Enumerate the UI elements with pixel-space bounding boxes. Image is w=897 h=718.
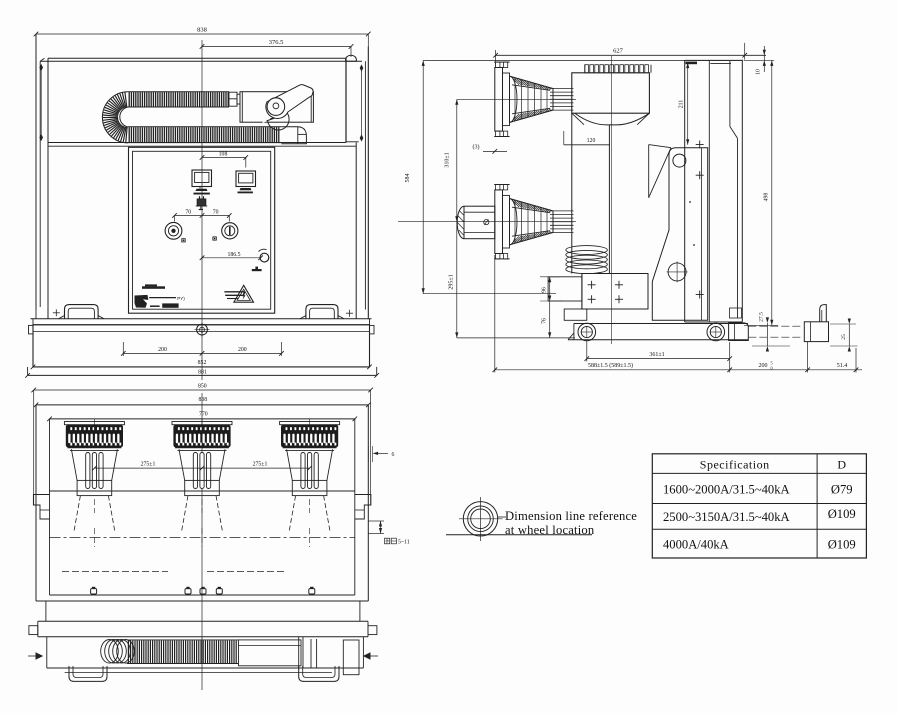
svg-text:108: 108: [219, 152, 228, 158]
svg-text:200: 200: [158, 347, 167, 353]
svg-text:10: 10: [756, 69, 762, 75]
svg-text:588±1.5 (589±1.5): 588±1.5 (589±1.5): [588, 362, 633, 369]
svg-text:584: 584: [405, 174, 411, 183]
svg-text:Ø109: Ø109: [828, 538, 856, 552]
svg-text:at wheel location: at wheel location: [505, 523, 595, 537]
svg-text:376.5: 376.5: [269, 39, 284, 46]
svg-text:Ø109: Ø109: [828, 507, 856, 521]
svg-text:96: 96: [541, 287, 547, 293]
svg-text:275±1: 275±1: [253, 461, 268, 467]
svg-text:PY): PY): [177, 296, 185, 301]
svg-text:498: 498: [763, 193, 769, 202]
svg-text:627: 627: [613, 47, 624, 54]
svg-text:120: 120: [587, 138, 596, 144]
svg-text:361±1: 361±1: [649, 352, 664, 358]
svg-text:200: 200: [759, 363, 768, 369]
svg-text:Specification: Specification: [700, 457, 770, 471]
svg-text:70: 70: [213, 209, 219, 215]
svg-text:770: 770: [199, 411, 208, 417]
svg-text:5~11: 5~11: [398, 540, 410, 546]
svg-text:295±1: 295±1: [449, 274, 455, 289]
svg-text:4000A/40kA: 4000A/40kA: [663, 538, 729, 552]
svg-text:850: 850: [198, 383, 207, 389]
svg-text:D: D: [837, 457, 846, 471]
svg-text:Dimension line reference: Dimension line reference: [505, 509, 637, 523]
svg-text:211: 211: [679, 100, 685, 109]
svg-text:186.5: 186.5: [227, 252, 240, 258]
svg-text:Ø79: Ø79: [831, 483, 853, 497]
svg-text:25: 25: [841, 334, 847, 340]
svg-text:200: 200: [238, 347, 247, 353]
svg-text:(3): (3): [473, 144, 480, 151]
svg-text:275±1: 275±1: [141, 461, 156, 467]
svg-text:310±1: 310±1: [444, 152, 450, 167]
svg-text:838: 838: [198, 397, 207, 403]
svg-text:70: 70: [185, 209, 191, 215]
svg-text:1600~2000A/31.5~40kA: 1600~2000A/31.5~40kA: [663, 483, 790, 497]
svg-text:0: 0: [771, 366, 773, 371]
svg-text:881: 881: [198, 370, 207, 376]
svg-text:852: 852: [198, 360, 207, 366]
svg-text:2500~3150A/31.5~40kA: 2500~3150A/31.5~40kA: [663, 510, 790, 524]
svg-text:27.5: 27.5: [759, 312, 765, 322]
svg-text:76: 76: [541, 318, 547, 324]
svg-text:838: 838: [197, 27, 207, 34]
svg-text:6: 6: [392, 452, 395, 458]
svg-text:51.4: 51.4: [837, 363, 848, 369]
